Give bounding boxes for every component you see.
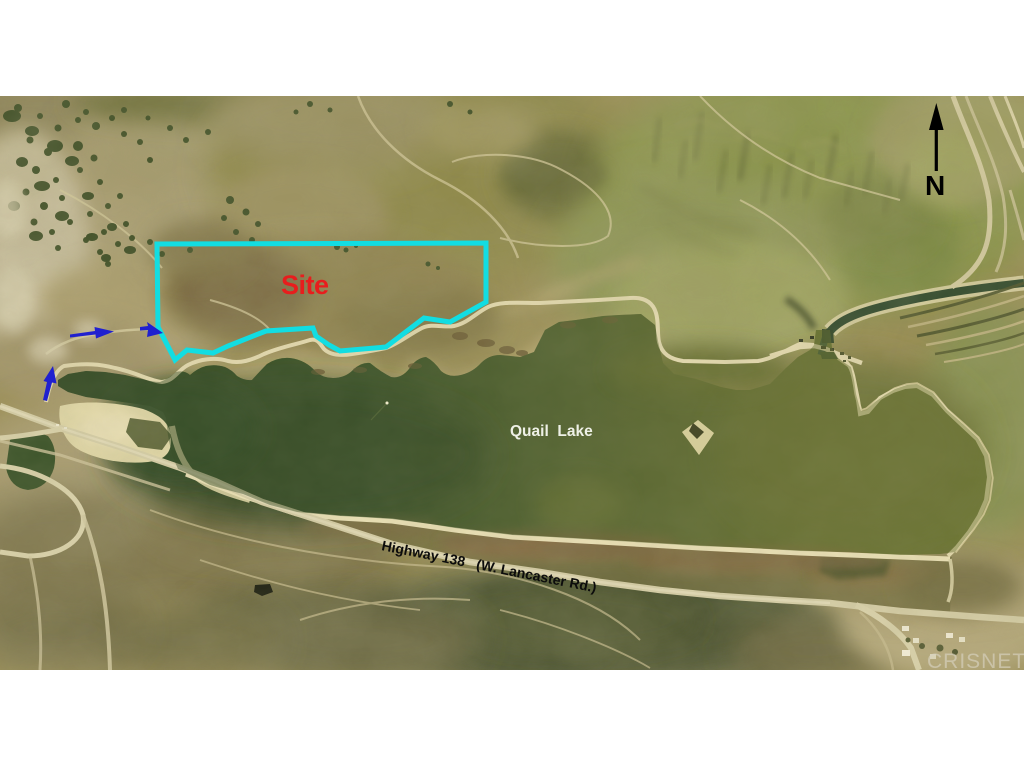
svg-text:CRISNET: CRISNET <box>927 650 1024 673</box>
svg-text:Site: Site <box>281 270 329 300</box>
svg-text:Quail Lake: Quail Lake <box>510 423 593 440</box>
svg-text:N: N <box>925 170 945 201</box>
